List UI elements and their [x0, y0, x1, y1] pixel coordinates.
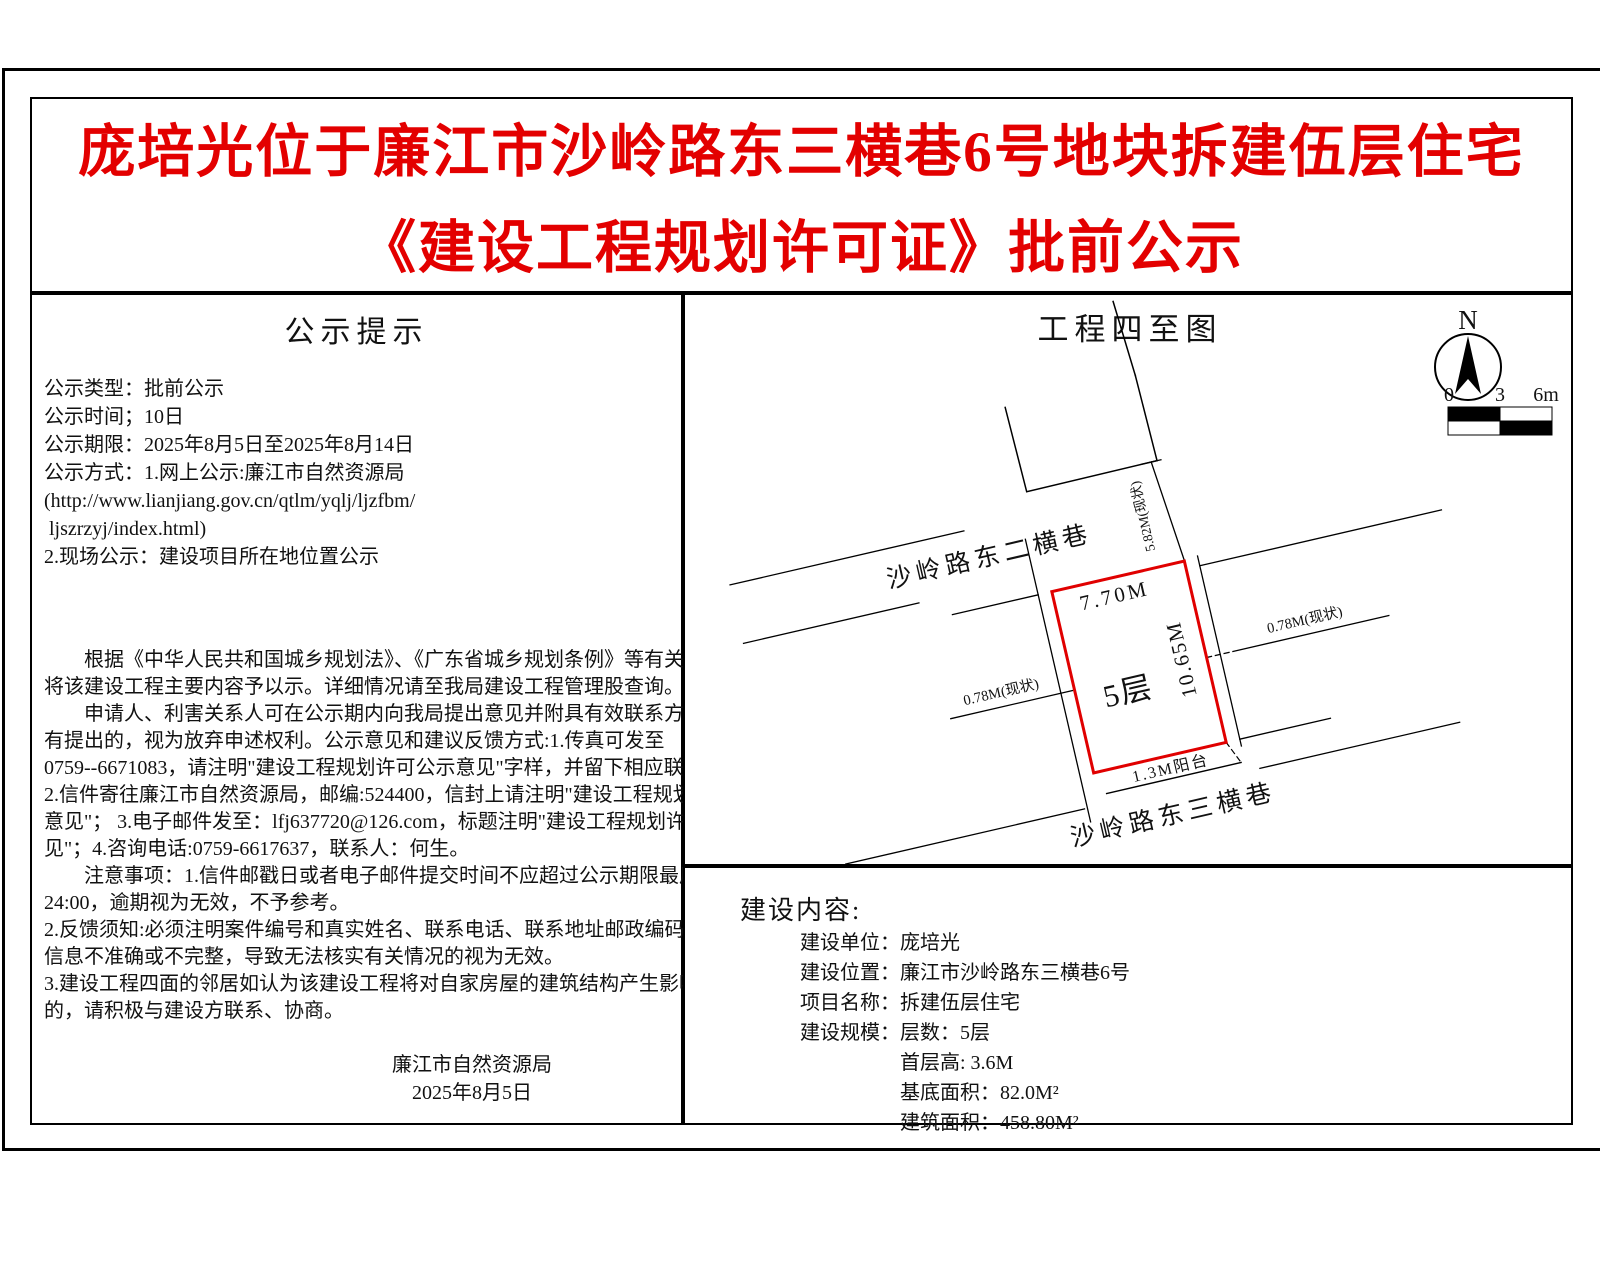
balcony-connector	[1226, 740, 1241, 765]
notice-body-block: 根据《中华人民共和国城乡规划法》、《广东省城乡规划条例》等有关规定，现 将该建设…	[44, 647, 784, 1025]
body-line: 将该建设工程主要内容予以示。详细情况请至我局建设工程管理股查询。	[44, 674, 784, 701]
east-neighbor-bottom-edge	[1240, 718, 1331, 739]
content-line-floor-area: 建筑面积：458.80M²	[800, 1108, 1130, 1138]
site-plan-panel: 工程四至图 N 0 3 6m	[683, 293, 1573, 866]
content-line-project: 项目名称：拆建伍层住宅	[800, 988, 1130, 1018]
construction-content-panel: 建设内容: 建设单位：庞培光 建设位置：廉江市沙岭路东三横巷6号 项目名称：拆建…	[683, 866, 1573, 1125]
north-street-edge	[744, 603, 919, 643]
signature-org: 廉江市自然资源局	[282, 1051, 662, 1079]
parcel-floors-label: 5层	[1100, 669, 1157, 714]
title-box: 庞培光位于廉江市沙岭路东三横巷6号地块拆建伍层住宅 《建设工程规划许可证》批前公…	[30, 97, 1573, 293]
north-label: N	[1458, 305, 1478, 335]
body-line: 的，请积极与建设方联系、协商。	[44, 998, 784, 1025]
scale-label-0: 0	[1444, 384, 1454, 406]
info-line: 公示方式：1.网上公示:廉江市自然资源局	[44, 459, 415, 487]
west-neighbor-top-edge	[952, 595, 1038, 615]
content-line-scale: 建设规模：层数：5层	[800, 1018, 1130, 1048]
content-line-base-area: 基底面积：82.0M²	[800, 1078, 1130, 1108]
scale-label-6m: 6m	[1533, 384, 1559, 406]
page-title-line2: 《建设工程规划许可证》批前公示	[359, 202, 1244, 284]
info-line: 2.现场公示：建设项目所在地位置公示	[44, 543, 415, 571]
body-line: 根据《中华人民共和国城乡规划法》、《广东省城乡规划条例》等有关规定，现	[44, 647, 784, 674]
notice-info-heading: 公示提示	[32, 307, 681, 351]
body-line: 0759--6671083，请注明"建设工程规划许可公示意见"字样，并留下相应联…	[44, 755, 784, 782]
construction-content-heading: 建设内容:	[740, 890, 861, 927]
south-street-edge	[1260, 722, 1460, 768]
south-street-edge	[846, 809, 1085, 864]
body-line: 3.建设工程四面的邻居如认为该建设工程将对自家房屋的建筑结构产生影响、破坏	[44, 971, 784, 998]
notice-page: 庞培光位于廉江市沙岭路东三横巷6号地块拆建伍层住宅 《建设工程规划许可证》批前公…	[0, 0, 1600, 1280]
gap-east-dim-label: 0.78M(现状)	[1265, 603, 1344, 637]
gap-west-dim-label: 0.78M(现状)	[962, 675, 1041, 709]
signature-block: 廉江市自然资源局 2025年8月5日	[282, 1051, 662, 1107]
content-line-location: 建设位置：廉江市沙岭路东三横巷6号	[800, 958, 1130, 988]
north-building-outline	[1005, 375, 1158, 492]
gap-north-dim-label: 5.82M(现状)	[1127, 480, 1158, 553]
north-street-name: 沙岭路东二横巷	[884, 520, 1095, 595]
body-line: 见"；4.咨询电话:0759-6617637，联系人：何生。	[44, 836, 784, 863]
notice-info-block: 公示类型：批前公示 公示时间；10日 公示期限：2025年8月5日至2025年8…	[44, 375, 415, 571]
body-line: 2.反馈须知:必须注明案件编号和真实姓名、联系电话、联系地址邮政编码，如反馈	[44, 917, 784, 944]
body-line: 注意事项：1.信件邮戳日或者电子邮件提交时间不应超过公示期限最后一天的	[44, 863, 784, 890]
info-line: (http://www.lianjiang.gov.cn/qtlm/yqlj/l…	[44, 487, 415, 515]
construction-content-lines: 建设单位：庞培光 建设位置：廉江市沙岭路东三横巷6号 项目名称：拆建伍层住宅 建…	[800, 928, 1130, 1138]
content-line-floor-height: 首层高: 3.6M	[800, 1048, 1130, 1078]
scale-label-3: 3	[1495, 384, 1505, 406]
content-line-unit: 建设单位：庞培光	[800, 928, 1130, 958]
signature-date: 2025年8月5日	[282, 1079, 662, 1107]
info-line: 公示期限：2025年8月5日至2025年8月14日	[44, 431, 415, 459]
body-line: 2.信件寄往廉江市自然资源局，邮编:524400，信封上请注明"建设工程规划许可…	[44, 782, 784, 809]
east-neighbor-top-edge	[1200, 510, 1442, 566]
body-line: 信息不准确或不完整，导致无法核实有关情况的视为无效。	[44, 944, 784, 971]
notice-info-panel: 公示提示 公示类型：批前公示 公示时间；10日 公示期限：2025年8月5日至2…	[30, 293, 683, 1125]
parcel-right-dim-label: 10.65M	[1161, 619, 1202, 700]
body-line: 意见"； 3.电子邮件发至：lfj637720@126.com，标题注明"建设工…	[44, 809, 784, 836]
info-line: 公示类型：批前公示	[44, 375, 415, 403]
info-line: ljszrzyj/index.html)	[44, 515, 415, 543]
body-line: 24:00，逾期视为无效，不予参考。	[44, 890, 784, 917]
info-line: 公示时间；10日	[44, 403, 415, 431]
site-plan-heading: 工程四至图	[1038, 312, 1223, 347]
scale-bar: 0 3 6m	[1444, 384, 1559, 435]
south-street-name: 沙岭路东三横巷	[1068, 778, 1279, 853]
body-line: 有提出的，视为放弃申述权利。公示意见和建议反馈方式:1.传真可发至	[44, 728, 784, 755]
site-plan-svg: 工程四至图 N 0 3 6m	[685, 295, 1571, 864]
page-title-line1: 庞培光位于廉江市沙岭路东三横巷6号地块拆建伍层住宅	[78, 106, 1525, 188]
body-line: 申请人、利害关系人可在公示期内向我局提出意见并附具有效联系方式，逾期没	[44, 701, 784, 728]
